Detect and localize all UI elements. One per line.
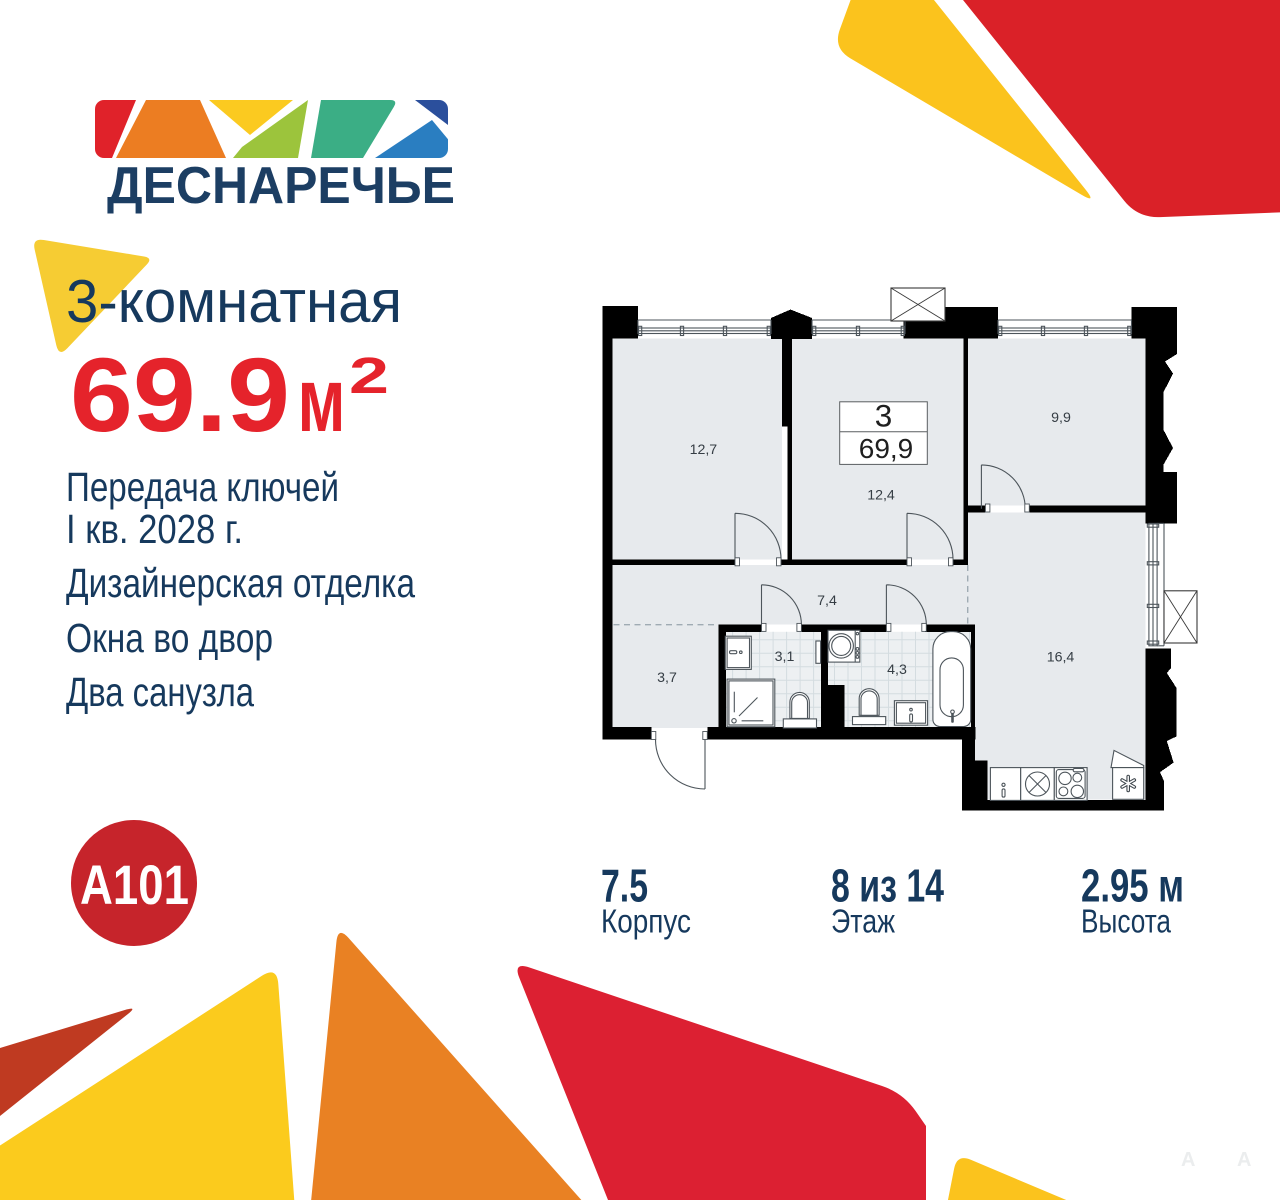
svg-text:Два санузла: Два санузла: [66, 669, 254, 715]
svg-text:м: м: [298, 350, 346, 451]
svg-text:16,4: 16,4: [1047, 649, 1075, 665]
svg-text:2: 2: [349, 347, 389, 404]
svg-text:9,9: 9,9: [1051, 410, 1071, 426]
svg-text:7,4: 7,4: [817, 593, 837, 609]
svg-text:Высота: Высота: [1081, 903, 1172, 940]
svg-text:12,4: 12,4: [867, 488, 895, 504]
svg-text:Корпус: Корпус: [601, 903, 691, 940]
svg-text:А: А: [1237, 1149, 1251, 1171]
svg-text:Окна во двор: Окна во двор: [66, 615, 273, 661]
svg-text:3: 3: [875, 397, 893, 433]
svg-text:3,7: 3,7: [657, 670, 677, 686]
svg-text:А: А: [1181, 1149, 1195, 1171]
svg-text:69,9: 69,9: [859, 433, 914, 464]
svg-text:Передача ключей: Передача ключей: [66, 464, 339, 510]
svg-text:А101: А101: [80, 853, 189, 916]
svg-text:12,7: 12,7: [690, 442, 718, 458]
svg-text:Этаж: Этаж: [831, 903, 895, 940]
svg-text:ДЕСНАРЕЧЬЕ: ДЕСНАРЕЧЬЕ: [107, 157, 455, 215]
svg-text:3-комнатная: 3-комнатная: [66, 268, 402, 335]
svg-text:Дизайнерская отделка: Дизайнерская отделка: [66, 560, 415, 606]
svg-text:3,1: 3,1: [775, 649, 795, 665]
svg-text:I кв. 2028 г.: I кв. 2028 г.: [66, 506, 243, 552]
svg-text:4,3: 4,3: [887, 662, 907, 678]
svg-text:69.9: 69.9: [70, 337, 290, 454]
